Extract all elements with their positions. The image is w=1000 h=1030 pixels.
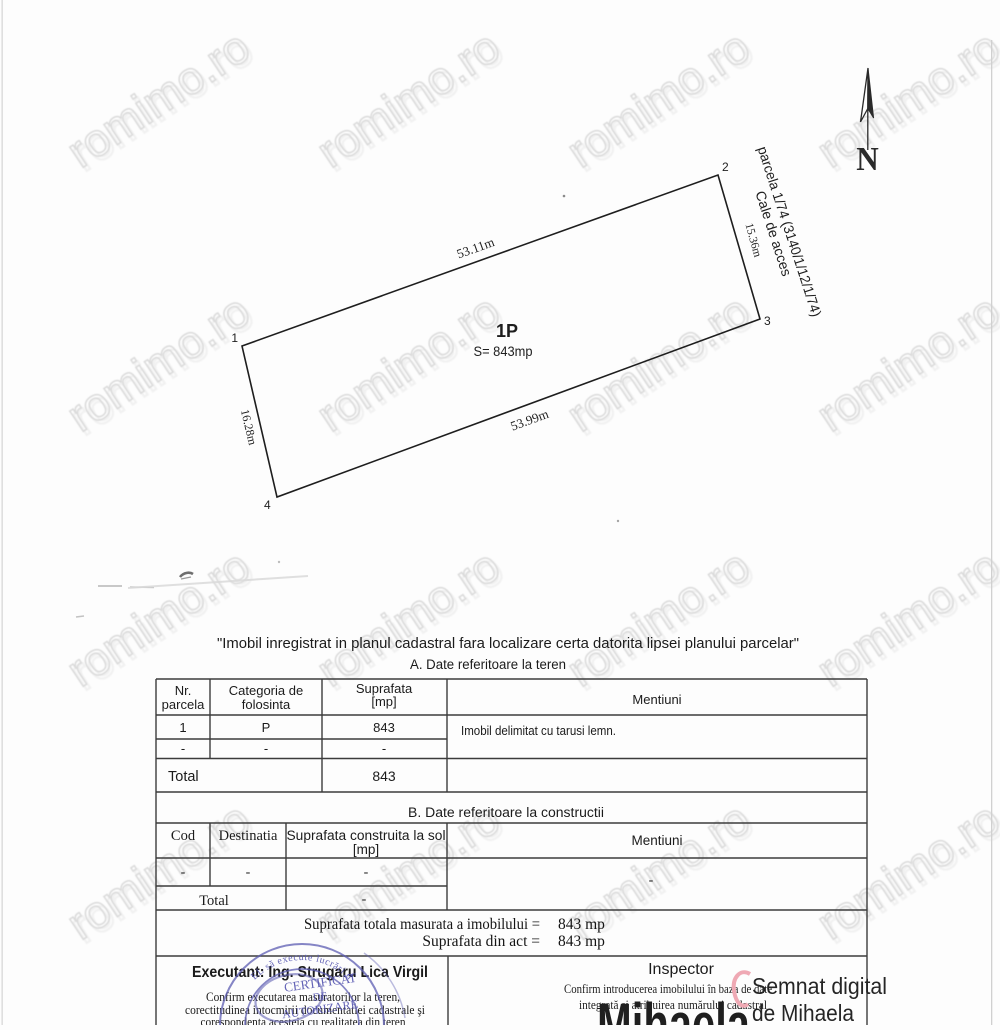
svg-text:"Imobil inregistrat in planul: "Imobil inregistrat in planul cadastral … bbox=[217, 635, 799, 652]
svg-text:[mp]: [mp] bbox=[371, 694, 396, 709]
svg-text:Destinatia: Destinatia bbox=[219, 828, 278, 844]
svg-text:4: 4 bbox=[264, 498, 271, 512]
svg-text:-: - bbox=[362, 892, 367, 907]
svg-text:Inspector: Inspector bbox=[648, 961, 714, 978]
svg-text:-: - bbox=[382, 741, 386, 756]
svg-text:-: - bbox=[181, 741, 185, 756]
svg-text:Mihaela: Mihaela bbox=[597, 992, 751, 1025]
svg-text:Mentiuni: Mentiuni bbox=[632, 692, 681, 707]
svg-text:Suprafata totala masurata a im: Suprafata totala masurata a imobilului = bbox=[304, 916, 540, 933]
svg-text:A. Date referitoare la teren: A. Date referitoare la teren bbox=[410, 657, 566, 672]
svg-text:Suprafata construita la sol: Suprafata construita la sol bbox=[287, 828, 446, 843]
svg-text:Cod: Cod bbox=[171, 828, 196, 844]
svg-text:843: 843 bbox=[372, 768, 396, 784]
svg-text:N: N bbox=[856, 141, 879, 178]
svg-text:1P: 1P bbox=[496, 321, 518, 341]
svg-text:-: - bbox=[181, 865, 186, 880]
svg-text:folosinta: folosinta bbox=[242, 697, 291, 712]
svg-text:B. Date referitoare la constru: B. Date referitoare la constructii bbox=[408, 805, 604, 820]
svg-text:de Mihaela: de Mihaela bbox=[752, 1000, 854, 1025]
svg-text:-: - bbox=[264, 741, 268, 756]
svg-text:843 mp: 843 mp bbox=[558, 933, 605, 950]
svg-text:-: - bbox=[364, 865, 369, 880]
svg-text:1: 1 bbox=[231, 331, 238, 345]
svg-text:Total: Total bbox=[168, 769, 199, 785]
svg-text:-: - bbox=[649, 873, 654, 888]
svg-text:Categoria de: Categoria de bbox=[229, 683, 303, 698]
svg-text:Nr.: Nr. bbox=[175, 683, 192, 698]
svg-text:S= 843mp: S= 843mp bbox=[474, 343, 533, 359]
svg-text:Suprafata din act =: Suprafata din act = bbox=[422, 933, 540, 950]
svg-text:843 mp: 843 mp bbox=[558, 916, 605, 933]
svg-text:843: 843 bbox=[373, 720, 395, 735]
svg-text:Imobil delimitat cu tarusi lem: Imobil delimitat cu tarusi lemn. bbox=[461, 724, 616, 738]
svg-text:3: 3 bbox=[764, 314, 771, 328]
svg-text:1: 1 bbox=[179, 720, 186, 735]
svg-text:Total: Total bbox=[199, 893, 229, 909]
svg-text:[mp]: [mp] bbox=[353, 842, 379, 857]
svg-text:-: - bbox=[246, 865, 251, 880]
svg-text:P: P bbox=[262, 720, 271, 735]
svg-text:2: 2 bbox=[722, 160, 729, 174]
svg-text:Semnat digital: Semnat digital bbox=[752, 973, 887, 999]
svg-text:parcela: parcela bbox=[162, 697, 205, 712]
svg-text:Mentiuni: Mentiuni bbox=[631, 833, 682, 848]
